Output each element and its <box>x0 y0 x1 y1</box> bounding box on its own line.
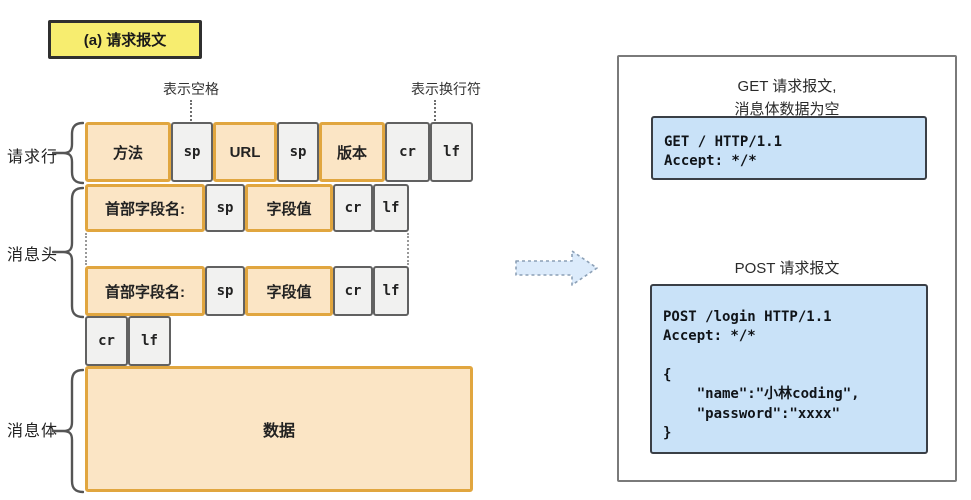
cr-cell: cr <box>85 316 128 366</box>
lf-cell: lf <box>430 122 473 182</box>
lf-cell: lf <box>373 184 409 232</box>
request-line-row: 方法 sp URL sp 版本 cr lf <box>85 122 473 182</box>
cr-cell: cr <box>385 122 430 182</box>
brace-icon-message-body <box>52 367 84 495</box>
continuation-dotted-line-right <box>407 233 409 265</box>
crlf-separator-row: cr lf <box>85 316 171 366</box>
field-value-cell: 字段值 <box>245 266 333 316</box>
continuation-dotted-line-left <box>85 233 87 265</box>
lf-cell: lf <box>373 266 409 316</box>
annotation-space-connector-line <box>190 100 192 121</box>
brace-icon-message-header <box>52 185 84 320</box>
get-request-code: GET / HTTP/1.1 Accept: */* <box>651 116 927 180</box>
arrow-right-icon <box>513 246 601 290</box>
method-cell: 方法 <box>85 122 171 182</box>
http-request-message-diagram: (a) 请求报文 表示空格 表示换行符 请求行 消息头 消息体 方法 sp UR… <box>0 0 971 500</box>
annotation-space-label: 表示空格 <box>144 79 238 99</box>
header-field-row: 首部字段名: sp 字段值 cr lf <box>85 266 409 316</box>
annotation-newline-label: 表示换行符 <box>390 79 502 99</box>
brace-icon-request-line <box>52 120 84 186</box>
title-badge: (a) 请求报文 <box>48 20 202 59</box>
lf-cell: lf <box>128 316 171 366</box>
section-label-message-header: 消息头 <box>7 241 58 265</box>
sp-cell: sp <box>171 122 213 182</box>
url-cell: URL <box>213 122 277 182</box>
field-value-cell: 字段值 <box>245 184 333 232</box>
sp-cell: sp <box>205 266 245 316</box>
cr-cell: cr <box>333 184 373 232</box>
section-label-message-body: 消息体 <box>7 417 58 441</box>
data-cell: 数据 <box>85 366 473 492</box>
post-request-code: POST /login HTTP/1.1 Accept: */* { "name… <box>650 284 928 454</box>
header-field-row: 首部字段名: sp 字段值 cr lf <box>85 184 409 232</box>
post-request-title: POST 请求报文 <box>619 257 955 280</box>
annotation-newline-connector-line <box>434 100 436 121</box>
request-examples-panel: GET 请求报文, 消息体数据为空 GET / HTTP/1.1 Accept:… <box>617 55 957 482</box>
header-field-name-cell: 首部字段名: <box>85 266 205 316</box>
sp-cell: sp <box>277 122 319 182</box>
version-cell: 版本 <box>319 122 385 182</box>
get-request-title: GET 请求报文, 消息体数据为空 <box>619 75 955 122</box>
section-label-request-line: 请求行 <box>7 143 58 167</box>
header-field-name-cell: 首部字段名: <box>85 184 205 232</box>
sp-cell: sp <box>205 184 245 232</box>
cr-cell: cr <box>333 266 373 316</box>
